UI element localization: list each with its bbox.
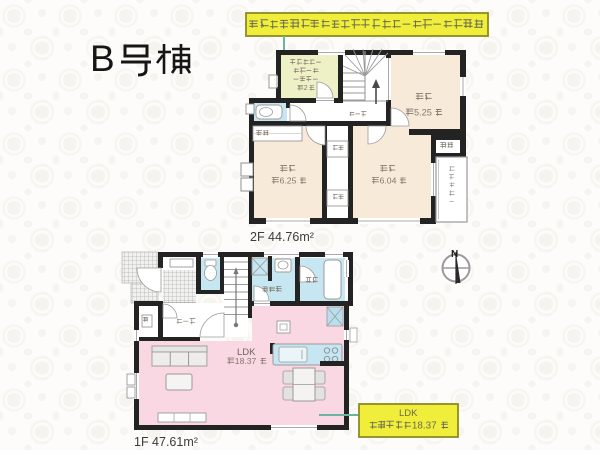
- svg-text:B: B: [90, 38, 115, 79]
- svg-text:6.25: 6.25: [280, 176, 297, 186]
- svg-text:1F 47.61m²: 1F 47.61m²: [134, 435, 198, 449]
- svg-text:5.25: 5.25: [414, 107, 432, 117]
- svg-text:2: 2: [304, 84, 308, 92]
- svg-text:18.37: 18.37: [235, 356, 257, 366]
- svg-text:N: N: [451, 249, 458, 260]
- svg-text:2F 44.76m²: 2F 44.76m²: [250, 230, 314, 244]
- svg-text:LDK: LDK: [399, 408, 418, 419]
- svg-text:18.37: 18.37: [412, 420, 437, 431]
- svg-text:6.04: 6.04: [380, 176, 397, 186]
